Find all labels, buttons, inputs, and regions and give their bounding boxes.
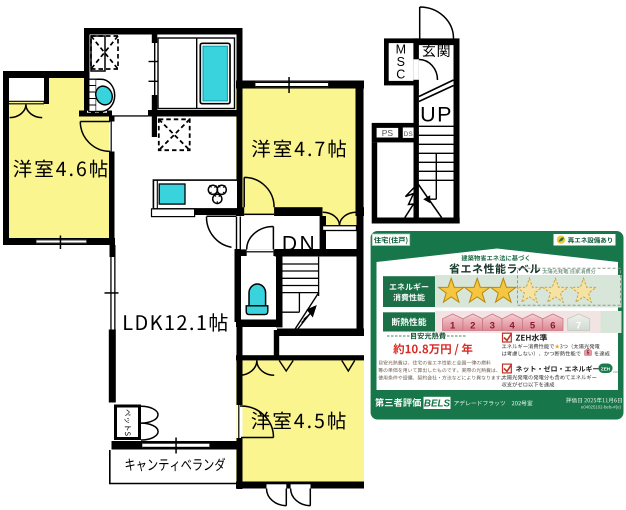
svg-text:DN: DN [282, 233, 317, 256]
svg-text:3: 3 [490, 320, 495, 331]
svg-text:UP: UP [420, 102, 453, 126]
svg-text:5: 5 [587, 351, 590, 357]
svg-text:BELS: BELS [424, 398, 451, 409]
svg-text:7: 7 [576, 320, 581, 331]
svg-text:6: 6 [550, 320, 555, 331]
svg-text:4: 4 [510, 320, 516, 331]
svg-text:e04025102-bels-#(e): e04025102-bels-#(e) [581, 404, 621, 409]
svg-text:2: 2 [470, 320, 475, 331]
svg-text:DS: DS [404, 131, 414, 138]
svg-text:ZEH: ZEH [601, 366, 611, 371]
svg-text:1: 1 [450, 320, 456, 331]
svg-text:5: 5 [530, 320, 536, 331]
svg-text:PS: PS [382, 128, 394, 138]
svg-text:C: C [396, 68, 405, 82]
